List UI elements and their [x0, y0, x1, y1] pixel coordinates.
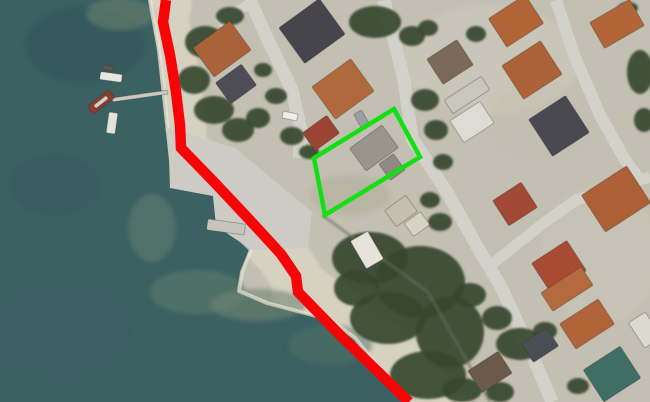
- tree-cluster: [567, 378, 589, 394]
- tree-cluster: [178, 66, 210, 94]
- map-viewport: [0, 0, 650, 402]
- water-depth-patch: [210, 289, 306, 321]
- water-depth-patch: [128, 194, 176, 262]
- aerial-map[interactable]: [0, 0, 650, 402]
- tree-cluster: [246, 108, 270, 128]
- tree-cluster: [254, 63, 272, 77]
- tree-cluster: [482, 306, 512, 330]
- boat-dinghy: [102, 65, 114, 71]
- tree-cluster: [433, 154, 453, 170]
- tree-cluster: [466, 26, 486, 42]
- tree-cluster: [280, 127, 304, 145]
- tree-cluster: [334, 270, 378, 306]
- tree-cluster: [265, 88, 287, 104]
- tree-cluster: [424, 120, 448, 140]
- tree-cluster: [411, 89, 439, 111]
- tree-cluster: [420, 192, 440, 208]
- tree-cluster: [454, 283, 486, 307]
- tree-cluster: [418, 20, 438, 36]
- water-depth-patch: [10, 155, 100, 215]
- tree-cluster: [349, 6, 401, 38]
- tree-cluster: [428, 213, 452, 231]
